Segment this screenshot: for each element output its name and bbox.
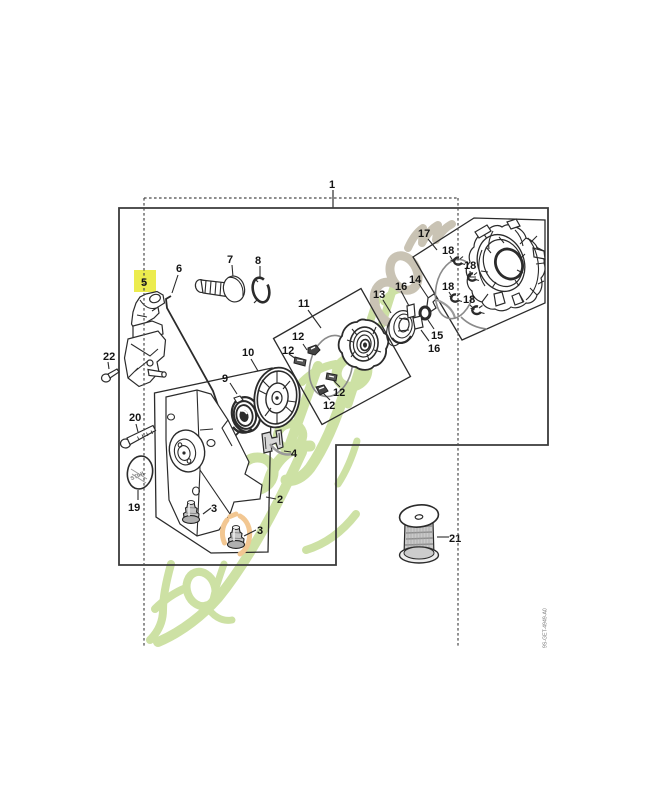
svg-text:2: 2	[277, 494, 283, 506]
svg-text:17: 17	[418, 228, 430, 240]
svg-text:12: 12	[282, 345, 294, 357]
svg-text:10: 10	[242, 347, 254, 359]
svg-text:18: 18	[442, 245, 454, 257]
svg-text:18: 18	[442, 281, 454, 293]
svg-text:1: 1	[329, 179, 335, 191]
svg-text:12: 12	[323, 400, 335, 412]
svg-text:7: 7	[227, 254, 233, 266]
svg-text:8: 8	[255, 255, 261, 267]
svg-text:16: 16	[428, 343, 440, 355]
svg-text:3: 3	[211, 503, 217, 515]
svg-text:21: 21	[449, 533, 461, 545]
svg-text:19: 19	[128, 502, 140, 514]
svg-text:13: 13	[373, 289, 385, 301]
svg-text:4: 4	[291, 448, 298, 460]
svg-text:9S-GET-4949-A0: 9S-GET-4949-A0	[543, 608, 549, 648]
svg-text:18: 18	[464, 260, 476, 272]
svg-text:12: 12	[292, 331, 304, 343]
svg-text:14: 14	[409, 274, 422, 286]
svg-text:15: 15	[431, 330, 443, 342]
svg-text:6: 6	[176, 263, 182, 275]
svg-text:3: 3	[257, 525, 263, 537]
svg-text:9: 9	[222, 373, 228, 385]
svg-text:22: 22	[103, 351, 115, 363]
svg-text:12: 12	[333, 387, 345, 399]
svg-text:18: 18	[463, 294, 475, 306]
svg-text:11: 11	[298, 298, 310, 310]
svg-text:20: 20	[129, 412, 141, 424]
